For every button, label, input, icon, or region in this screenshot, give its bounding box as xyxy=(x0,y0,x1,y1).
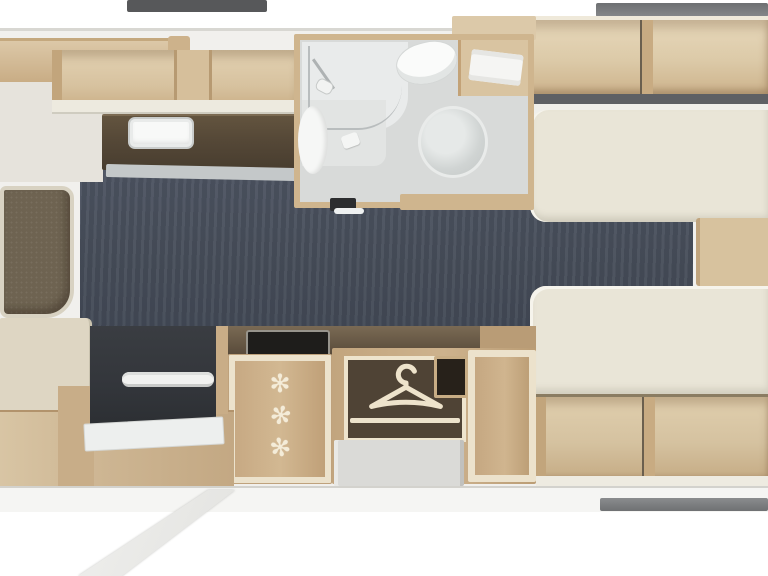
toilet xyxy=(418,106,488,178)
door-grab-handle xyxy=(122,372,214,387)
towel xyxy=(468,49,523,86)
single-bed-top xyxy=(530,110,768,222)
washroom-sill xyxy=(400,194,534,210)
corner-fixture xyxy=(298,106,328,174)
locker-divider xyxy=(642,397,655,480)
bedside-step xyxy=(696,218,768,286)
cabinet-door xyxy=(475,357,529,475)
washroom xyxy=(294,34,534,208)
window-top-right xyxy=(596,3,768,17)
snowflake-icon: ✻ xyxy=(270,371,291,397)
locker-front-lip xyxy=(52,100,298,114)
fold-out-step xyxy=(70,490,240,576)
washroom-door-track xyxy=(334,208,364,214)
bedroom-lockers-bottom xyxy=(536,394,768,480)
locker-divider xyxy=(640,20,653,94)
locker-cheek xyxy=(536,397,546,480)
window-bottom-right xyxy=(600,498,768,511)
snowflake-icon: ✻ xyxy=(266,401,293,432)
fold-out-step-tread xyxy=(70,490,240,576)
fridge-door: ✻ ✻ ✻ xyxy=(235,361,325,477)
snowflake-icon: ✻ xyxy=(267,433,293,463)
wardrobe-front-panel xyxy=(334,440,464,486)
kitchen-sink xyxy=(128,117,194,149)
storage-cabinet xyxy=(468,350,536,482)
fridge-freezer: ✻ ✻ ✻ xyxy=(228,354,332,484)
open-locker xyxy=(434,356,468,398)
lounge-seat-cushion xyxy=(0,186,74,318)
caravan-floorplan: ✻ ✻ ✻ xyxy=(0,0,768,576)
window-top-left xyxy=(127,0,267,12)
bedroom-overhead-lockers-top xyxy=(512,16,768,94)
single-bed-bottom xyxy=(530,286,768,394)
hanging-rail xyxy=(350,418,460,423)
